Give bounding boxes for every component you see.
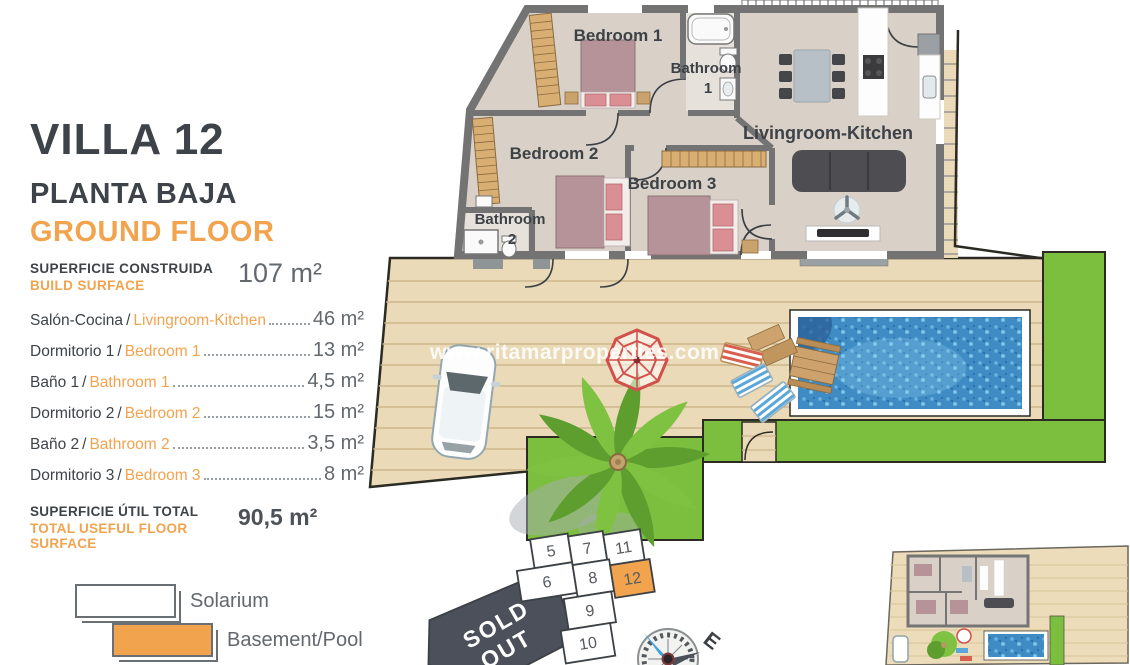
- separator: /: [126, 312, 130, 330]
- watermark: www.ritamarproperties.com: [430, 341, 719, 365]
- room-name-es: Dormitorio 2: [30, 405, 114, 423]
- garden-gate: [742, 422, 776, 462]
- build-surface-label-es: SUPERFICIE CONSTRUIDA: [30, 261, 228, 276]
- fridge-icon: [918, 34, 940, 55]
- room-row-bedroom-1: Dormitorio 1/Bedroom 1 13 m²: [30, 339, 364, 362]
- legend-item-solarium: Solarium: [75, 584, 363, 618]
- dining-table: [779, 50, 845, 102]
- bathtub-icon: [688, 14, 734, 44]
- room-value: 4,5 m²: [307, 370, 364, 393]
- room-name-en: Bedroom 2: [125, 405, 201, 423]
- plot-map: 5 7 11 6 8 12 9 10 SOLD OUT: [412, 522, 665, 665]
- build-surface-row: SUPERFICIE CONSTRUIDA BUILD SURFACE 107 …: [30, 261, 364, 293]
- tv-bench: [806, 226, 880, 241]
- dotted-leader: [269, 323, 310, 325]
- room-name-en: Bathroom 1: [89, 374, 169, 392]
- sofa: [792, 150, 906, 192]
- dotted-leader: [173, 447, 305, 449]
- bedroom-2-label: Bedroom 2: [510, 144, 599, 163]
- total-surface-value: 90,5 m²: [238, 504, 317, 531]
- build-surface-value: 107 m²: [238, 258, 322, 289]
- bathroom-2-label: Bathroom: [475, 211, 546, 228]
- solarium-swatch: [75, 584, 176, 618]
- room-value: 13 m²: [313, 339, 364, 362]
- bed-2: [556, 176, 630, 248]
- side-walkway: [938, 30, 1047, 259]
- legend-item-basement-pool: Basement/Pool: [112, 623, 363, 657]
- room-value: 8 m²: [324, 463, 364, 486]
- ceiling-fan-icon: [834, 197, 860, 223]
- sink-1-icon: [720, 78, 736, 100]
- floor-plan-page: Bedroom 1 Bathroom 1 Bedroom 2 Bedroom 3…: [0, 0, 1130, 665]
- room-name-es: Dormitorio 1: [30, 343, 114, 361]
- sink-2-icon: [476, 196, 492, 207]
- dotted-leader: [173, 385, 305, 387]
- villa-title: VILLA 12: [30, 118, 364, 162]
- dotted-leader: [204, 354, 310, 356]
- picnic-table: [788, 337, 841, 393]
- kitchen-sink-icon: [923, 76, 936, 98]
- house: Bedroom 1 Bathroom 1 Bedroom 2 Bedroom 3…: [458, 5, 944, 287]
- room-row-bathroom-1: Baño 1/Bathroom 1 4,5 m²: [30, 370, 364, 393]
- room-value: 46 m²: [313, 308, 364, 331]
- room-value: 15 m²: [313, 401, 364, 424]
- bathroom-1-number: 1: [704, 80, 712, 97]
- basement-pool-label: Basement/Pool: [227, 629, 363, 652]
- shower-2-icon: [464, 230, 498, 254]
- mini-floor-plan: [886, 546, 1128, 665]
- info-panel: VILLA 12 PLANTA BAJA GROUND FLOOR SUPERF…: [30, 118, 364, 551]
- plot-cell-10-label: 10: [578, 634, 598, 654]
- bathroom-2-number: 2: [508, 231, 516, 248]
- room-name-en: Livingroom-Kitchen: [133, 312, 266, 330]
- subtitle-es: PLANTA BAJA: [30, 178, 364, 211]
- room-name-es: Dormitorio 3: [30, 467, 114, 485]
- room-name-es: Baño 2: [30, 436, 79, 454]
- plot-cell-11-label: 11: [614, 539, 633, 558]
- separator: /: [117, 343, 121, 361]
- separator: /: [82, 436, 86, 454]
- separator: /: [117, 405, 121, 423]
- bathroom-1-label: Bathroom: [671, 60, 742, 77]
- subtitle-en: GROUND FLOOR: [30, 216, 364, 249]
- bedroom-3-label: Bedroom 3: [628, 174, 717, 193]
- compass-east-label: E: [699, 628, 724, 655]
- separator: /: [117, 467, 121, 485]
- room-row-bedroom-3: Dormitorio 3/Bedroom 3 8 m²: [30, 463, 364, 486]
- total-label-en: TOTAL USEFUL FLOOR SURFACE: [30, 521, 228, 551]
- room-name-en: Bedroom 3: [125, 467, 201, 485]
- bedroom-1-label: Bedroom 1: [574, 26, 663, 45]
- room-name-es: Salón-Cocina: [30, 312, 123, 330]
- separator: /: [82, 374, 86, 392]
- room-name-es: Baño 1: [30, 374, 79, 392]
- room-row-livingroom-kitchen: Salón-Cocina/Livingroom-Kitchen 46 m²: [30, 308, 364, 331]
- total-surface-row: SUPERFICIE ÚTIL TOTAL TOTAL USEFUL FLOOR…: [30, 504, 364, 551]
- room-name-en: Bedroom 1: [125, 343, 201, 361]
- room-name-en: Bathroom 2: [89, 436, 169, 454]
- dotted-leader: [204, 416, 310, 418]
- dotted-leader: [204, 478, 321, 480]
- plot-cell-12-label: 12: [622, 570, 642, 590]
- compass-icon: E: [638, 628, 724, 665]
- room-row-bathroom-2: Baño 2/Bathroom 2 3,5 m²: [30, 432, 364, 455]
- build-surface-label-en: BUILD SURFACE: [30, 278, 228, 293]
- legend: Solarium Basement/Pool: [75, 584, 363, 662]
- total-label-es: SUPERFICIE ÚTIL TOTAL: [30, 504, 228, 519]
- room-value: 3,5 m²: [307, 432, 364, 455]
- livingroom-kitchen-label: Livingroom-Kitchen: [743, 123, 913, 143]
- room-row-bedroom-2: Dormitorio 2/Bedroom 2 15 m²: [30, 401, 364, 424]
- basement-pool-swatch: [112, 623, 213, 657]
- wardrobe-bedroom3: [662, 151, 766, 167]
- room-list: Salón-Cocina/Livingroom-Kitchen 46 m² Do…: [30, 308, 364, 486]
- solarium-label: Solarium: [190, 590, 269, 613]
